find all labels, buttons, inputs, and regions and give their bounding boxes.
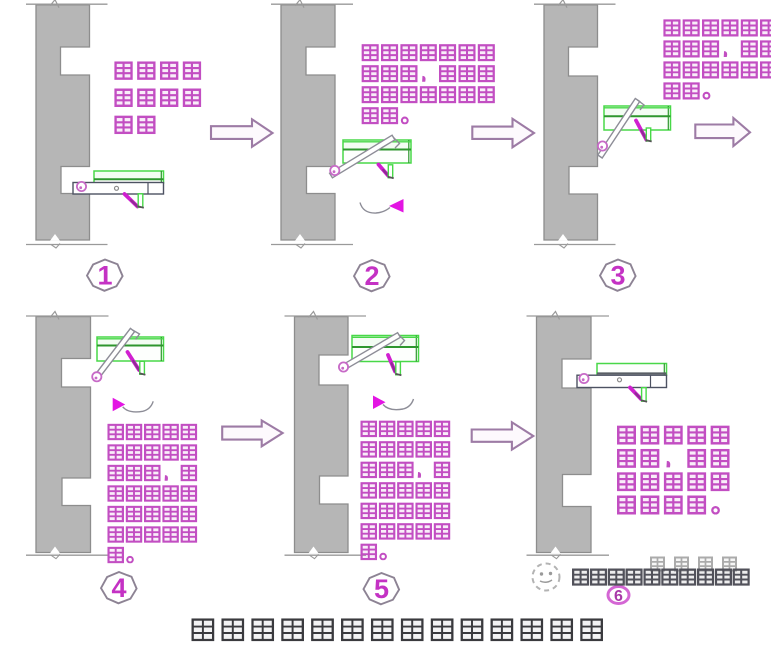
svg-text:1: 1 bbox=[97, 261, 112, 291]
svg-text:3: 3 bbox=[610, 261, 625, 291]
svg-text:6: 6 bbox=[614, 588, 623, 605]
svg-text:4: 4 bbox=[111, 573, 126, 603]
svg-text:2: 2 bbox=[364, 261, 379, 291]
svg-text:5: 5 bbox=[374, 574, 389, 604]
